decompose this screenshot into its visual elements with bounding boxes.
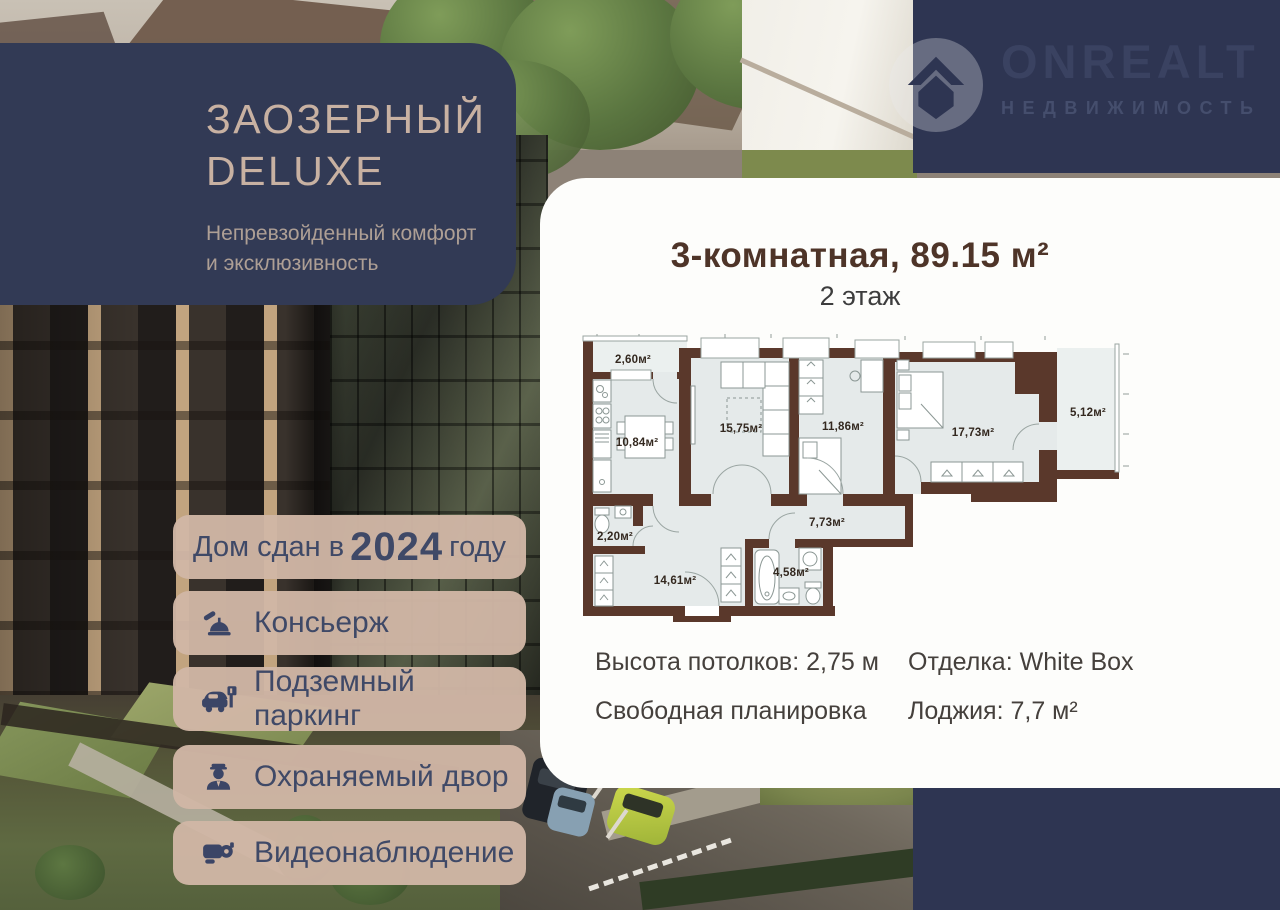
project-subtitle-line1: Непревзойденный комфорт [206,219,516,249]
spec-layout: Свободная планировка [595,697,908,726]
badge-label: Охраняемый двор [254,760,509,794]
spec-finish: Отделка: White Box [908,648,1170,677]
badge-guarded-yard: Охраняемый двор [173,745,526,809]
parking-icon [201,682,237,716]
badge-cctv: Видеонаблюдение [173,821,526,885]
badge-concierge: Консьерж [173,591,526,655]
guard-icon [201,760,237,794]
bell-icon [201,606,237,640]
completion-year: 2024 [350,525,443,570]
camera-icon [201,836,237,870]
badge-parking: Подземный паркинг [173,667,526,731]
apartment-title: 3-комнатная, 89.15 м² [550,236,1170,276]
room-area-label-loggia: 5,12м² [1070,407,1106,419]
room-area-label-hallway: 7,73м² [809,517,845,529]
promo-card: ЗАОЗЕРНЫЙ DELUXE Непревзойденный комфорт… [0,43,516,305]
apartment-floor: 2 этаж [550,281,1170,312]
badge-label: Видеонаблюдение [254,836,514,870]
project-subtitle: Непревзойденный комфорт и эксклюзивность [206,219,516,279]
room-area-label-hall-room: 14,61м² [654,575,697,587]
spec-list: Высота потолков: 2,75 м Отделка: White B… [595,648,1170,726]
logo-house-icon [889,38,983,132]
room-area-label-bathroom: 4,58м² [773,567,809,579]
completion-suffix: году [449,531,506,564]
spec-ceiling-height: Высота потолков: 2,75 м [595,648,908,677]
floor-plan: 2,60м²10,84м²15,75м²11,86м²17,73м²5,12м²… [575,334,1135,624]
badge-label: Подземный паркинг [254,665,526,733]
floor-plan-svg: 2,60м²10,84м²15,75м²11,86м²17,73м²5,12м²… [575,334,1135,624]
room-area-label-bedroom-2: 17,73м² [952,427,995,439]
badge-label: Консьерж [254,606,389,640]
project-title-line2: DELUXE [206,145,516,197]
project-title-line1: ЗАОЗЕРНЫЙ [206,93,516,145]
logo-wordmark: ONREALT НЕДВИЖИМОСТЬ [1001,34,1271,119]
listing-card: 3-комнатная, 89.15 м² 2 этаж [540,178,1280,788]
badge-completion-year: Дом сдан в 2024 году [173,515,526,579]
project-subtitle-line2: и эксклюзивность [206,249,516,279]
logo-subtext: НЕДВИЖИМОСТЬ [1001,98,1271,119]
bottom-right-navy-block [913,788,1280,910]
room-area-label-living-room: 15,75м² [720,423,763,435]
room-area-label-wc: 2,20м² [597,531,633,543]
completion-prefix: Дом сдан в [193,531,344,564]
room-area-label-balcony-top: 2,60м² [615,354,651,366]
shrub [35,845,105,900]
spec-loggia: Лоджия: 7,7 м² [908,697,1170,726]
logo-band: ONREALT НЕДВИЖИМОСТЬ [913,0,1280,173]
room-area-label-kitchen: 10,84м² [616,437,659,449]
room-area-label-bedroom-1: 11,86м² [822,421,864,433]
logo-text: ONREALT [1001,34,1271,89]
